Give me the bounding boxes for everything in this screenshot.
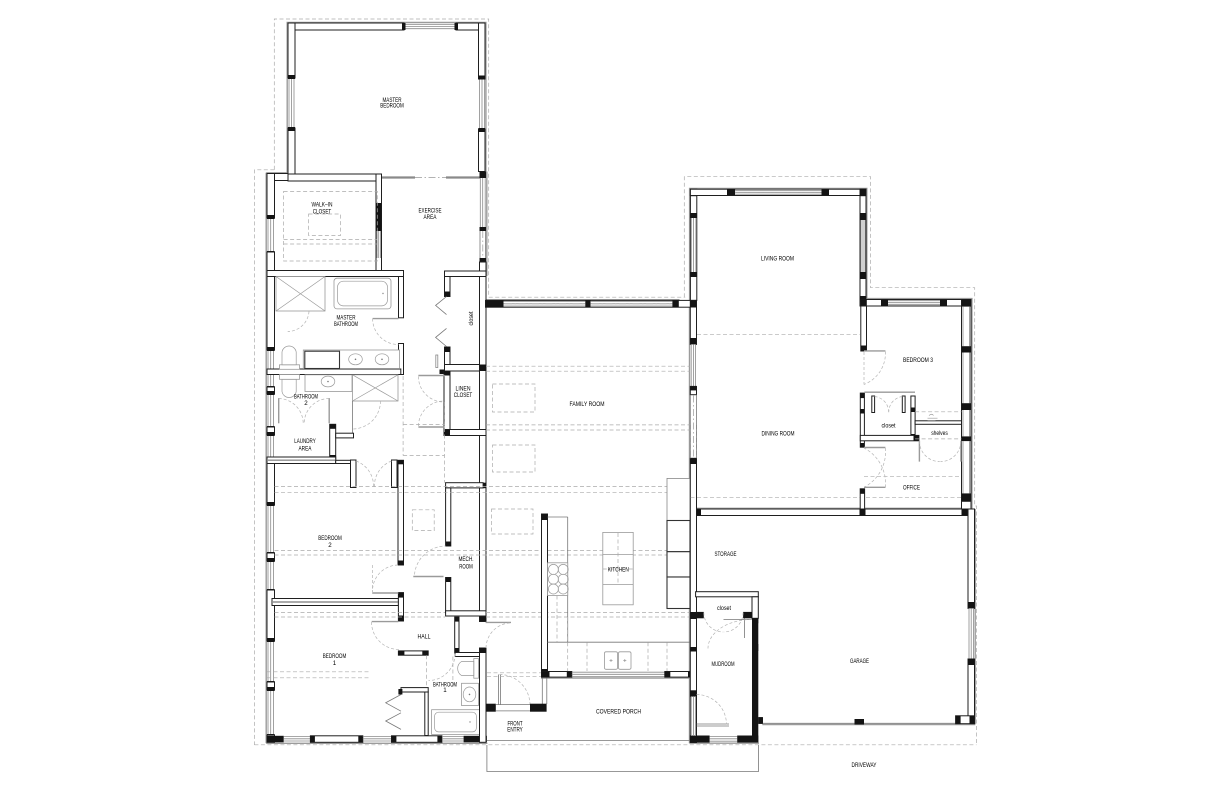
svg-text:LAUNDRY: LAUNDRY xyxy=(294,438,316,445)
svg-text:BEDROOM: BEDROOM xyxy=(380,102,404,109)
svg-text:closet: closet xyxy=(717,605,731,612)
svg-text:DINING ROOM: DINING ROOM xyxy=(762,431,795,438)
svg-text:2: 2 xyxy=(304,400,308,407)
svg-text:KITCHEN: KITCHEN xyxy=(608,567,629,574)
svg-text:BEDROOM: BEDROOM xyxy=(323,653,347,660)
svg-text:GARAGE: GARAGE xyxy=(850,658,869,665)
svg-text:AREA: AREA xyxy=(299,445,313,452)
svg-text:ENTRY: ENTRY xyxy=(507,727,523,734)
svg-text:CLOSET: CLOSET xyxy=(313,209,332,216)
svg-text:CLOSET: CLOSET xyxy=(454,392,473,399)
svg-text:STORAGE: STORAGE xyxy=(715,551,737,558)
svg-text:DRIVEWAY: DRIVEWAY xyxy=(852,762,877,769)
svg-text:HALL: HALL xyxy=(418,634,431,641)
svg-text:closet: closet xyxy=(882,422,896,429)
svg-text:BEDROOM: BEDROOM xyxy=(318,535,342,542)
svg-text:BATHROOM: BATHROOM xyxy=(334,321,358,328)
svg-text:LIVING ROOM: LIVING ROOM xyxy=(761,256,794,263)
svg-text:shelves: shelves xyxy=(931,430,948,437)
svg-text:OFFICE: OFFICE xyxy=(903,484,920,491)
svg-text:FAMILY ROOM: FAMILY ROOM xyxy=(570,401,605,408)
svg-text:MECH.: MECH. xyxy=(459,556,474,563)
svg-text:AREA: AREA xyxy=(424,214,438,221)
svg-text:closet: closet xyxy=(468,311,475,325)
svg-text:2: 2 xyxy=(328,542,332,549)
svg-text:ROOM: ROOM xyxy=(459,563,473,570)
svg-text:MUDROOM: MUDROOM xyxy=(712,661,735,668)
svg-text:1: 1 xyxy=(443,687,447,694)
svg-text:COVERED PORCH: COVERED PORCH xyxy=(596,709,641,716)
svg-text:WALK–IN: WALK–IN xyxy=(312,202,333,209)
svg-text:1: 1 xyxy=(333,660,337,667)
svg-text:BEDROOM 3: BEDROOM 3 xyxy=(903,357,933,364)
